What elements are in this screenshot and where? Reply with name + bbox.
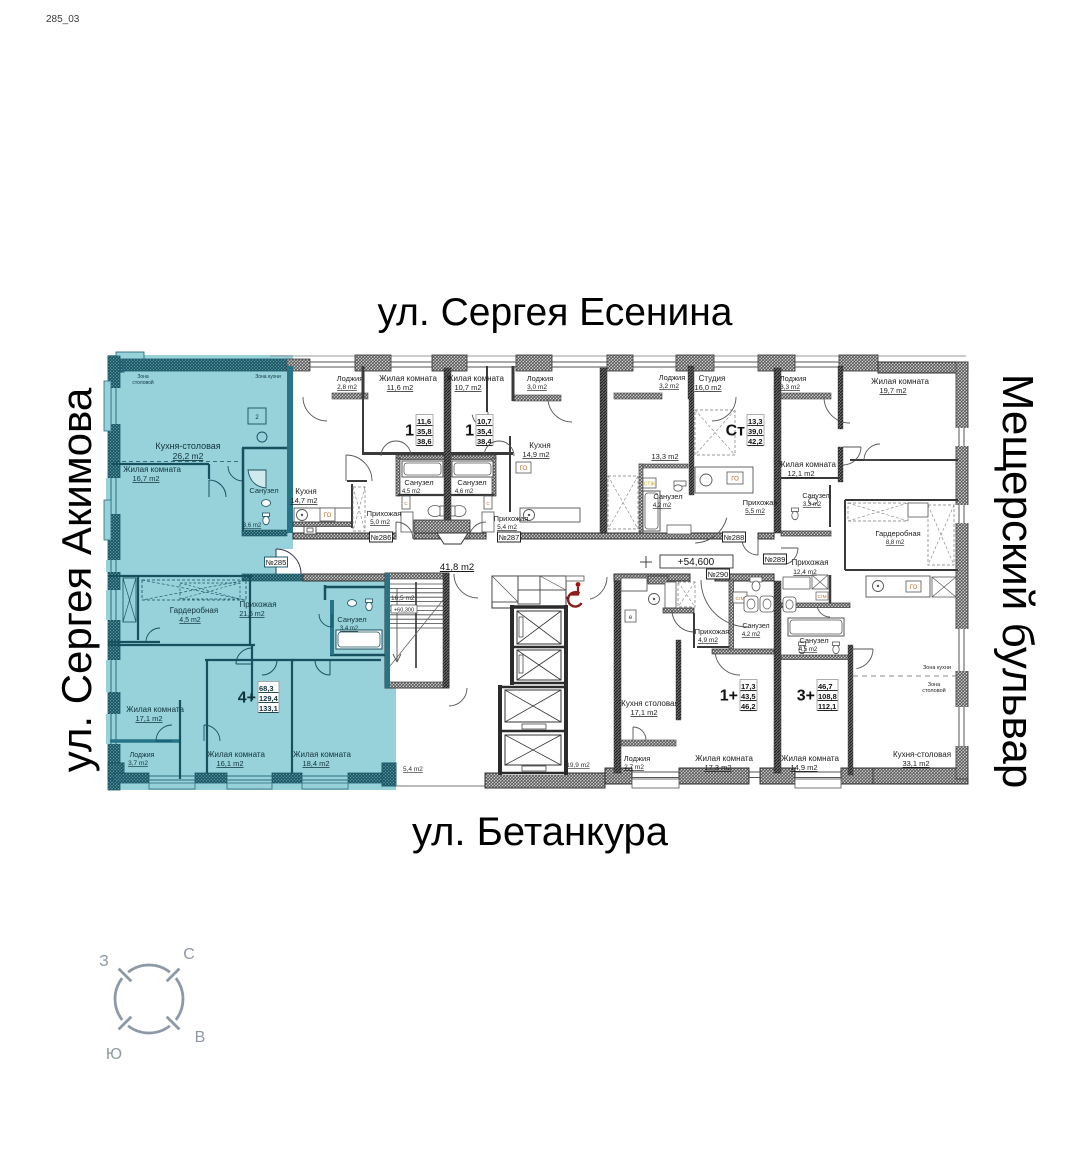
svg-text:38,4: 38,4 bbox=[477, 437, 492, 446]
svg-text:Прихожая: Прихожая bbox=[695, 627, 730, 636]
svg-text:1: 1 bbox=[405, 423, 414, 440]
svg-text:4+: 4+ bbox=[238, 690, 256, 707]
svg-text:Прихожая: Прихожая bbox=[791, 558, 828, 567]
svg-text:Прихожая: Прихожая bbox=[494, 514, 529, 523]
svg-text:Санузел: Санузел bbox=[802, 493, 829, 500]
svg-text:10,7: 10,7 bbox=[477, 417, 492, 426]
svg-text:ГО: ГО bbox=[520, 466, 528, 472]
svg-text:Жилая комната: Жилая комната bbox=[871, 377, 929, 386]
svg-text:285_03: 285_03 bbox=[46, 14, 80, 25]
svg-text:3,3 m2: 3,3 m2 bbox=[803, 502, 822, 508]
svg-text:№288: №288 bbox=[724, 533, 745, 542]
svg-text:39,0: 39,0 bbox=[748, 427, 763, 436]
svg-text:Кухня: Кухня bbox=[529, 441, 550, 450]
svg-text:Лоджия: Лоджия bbox=[527, 374, 554, 383]
svg-text:33,1 m2: 33,1 m2 bbox=[902, 759, 929, 768]
svg-text:Ст: Ст bbox=[726, 423, 746, 440]
svg-text:Санузел: Санузел bbox=[742, 623, 769, 630]
svg-text:5,5 m2: 5,5 m2 bbox=[745, 508, 765, 515]
svg-text:Зона кухни: Зона кухни bbox=[923, 665, 951, 671]
svg-text:16,5 m2: 16,5 m2 bbox=[391, 595, 415, 602]
svg-text:№287: №287 bbox=[499, 533, 520, 542]
svg-text:5,0 m2: 5,0 m2 bbox=[370, 519, 390, 526]
svg-text:4,2 m2: 4,2 m2 bbox=[653, 503, 672, 509]
svg-text:Жилая комната: Жилая комната bbox=[695, 754, 753, 763]
svg-text:11,6: 11,6 bbox=[417, 417, 431, 426]
svg-text:столовой: столовой bbox=[922, 687, 945, 694]
svg-text:16,1 m2: 16,1 m2 bbox=[216, 759, 243, 768]
svg-text:1: 1 bbox=[465, 423, 474, 440]
svg-text:17,3: 17,3 bbox=[741, 682, 756, 691]
svg-text:5,4 m2: 5,4 m2 bbox=[403, 766, 423, 773]
svg-text:2,8 m2: 2,8 m2 bbox=[337, 384, 357, 391]
svg-text:ГО: ГО bbox=[910, 585, 918, 591]
svg-text:Лоджия: Лоджия bbox=[130, 752, 155, 759]
svg-text:Жилая комната: Жилая комната bbox=[379, 374, 437, 383]
svg-text:Кухня-столовая: Кухня-столовая bbox=[893, 750, 951, 759]
svg-text:35,4: 35,4 bbox=[477, 427, 492, 436]
svg-text:Гардеробная: Гардеробная bbox=[170, 606, 218, 615]
svg-text:ГО: ГО bbox=[731, 476, 739, 482]
svg-text:Жилая комната: Жилая комната bbox=[207, 750, 265, 759]
svg-text:Прихожая: Прихожая bbox=[743, 498, 778, 507]
svg-text:17,1 m2: 17,1 m2 bbox=[630, 708, 657, 717]
svg-text:13,3 m2: 13,3 m2 bbox=[651, 452, 678, 461]
svg-text:Лоджия: Лоджия bbox=[337, 374, 364, 383]
svg-text:Прихожая: Прихожая bbox=[367, 509, 402, 518]
svg-text:Санузел: Санузел bbox=[249, 486, 278, 495]
svg-text:5,4 m2: 5,4 m2 bbox=[497, 524, 517, 531]
svg-text:19,7 m2: 19,7 m2 bbox=[879, 386, 906, 395]
svg-text:СтМ: СтМ bbox=[817, 594, 826, 599]
svg-text:14,7 m2: 14,7 m2 bbox=[290, 496, 317, 505]
svg-text:8,8 m2: 8,8 m2 bbox=[886, 540, 905, 546]
svg-text:Санузел: Санузел bbox=[337, 615, 366, 624]
svg-text:26,2 m2: 26,2 m2 bbox=[173, 451, 204, 461]
svg-text:68,3: 68,3 bbox=[259, 684, 274, 693]
svg-text:11,6 m2: 11,6 m2 bbox=[387, 383, 414, 392]
svg-text:Кухня-столовая: Кухня-столовая bbox=[155, 441, 220, 451]
svg-text:Прихожая: Прихожая bbox=[239, 600, 276, 609]
svg-text:12,1 m2: 12,1 m2 bbox=[787, 469, 814, 478]
svg-text:Жилая комната: Жилая комната bbox=[446, 374, 504, 383]
svg-text:ул. Сергея Есенина: ул. Сергея Есенина bbox=[378, 291, 733, 334]
svg-text:Жилая комната: Жилая комната bbox=[126, 705, 184, 714]
svg-text:№286: №286 bbox=[371, 533, 392, 542]
svg-text:4,5 m2: 4,5 m2 bbox=[799, 647, 818, 653]
svg-text:Жилая комната: Жилая комната bbox=[778, 460, 836, 469]
svg-text:Лоджия: Лоджия bbox=[659, 373, 686, 382]
svg-text:Санузел: Санузел bbox=[653, 492, 682, 501]
svg-text:Жилая комната: Жилая комната bbox=[781, 754, 839, 763]
svg-text:Санузел: Санузел bbox=[457, 478, 486, 487]
svg-text:3,4 m2: 3,4 m2 bbox=[340, 626, 359, 632]
svg-text:46,7: 46,7 bbox=[818, 682, 833, 691]
svg-text:Кухня столовая: Кухня столовая bbox=[621, 699, 679, 708]
svg-text:Лоджия: Лоджия bbox=[624, 754, 651, 763]
svg-text:З: З bbox=[99, 953, 109, 970]
svg-text:С: С bbox=[183, 946, 195, 963]
svg-text:46,2: 46,2 bbox=[741, 702, 756, 711]
svg-text:13,3: 13,3 bbox=[748, 417, 763, 426]
svg-text:3,0 m2: 3,0 m2 bbox=[527, 384, 547, 391]
svg-text:4,5 m2: 4,5 m2 bbox=[402, 489, 421, 495]
svg-text:10,7 m2: 10,7 m2 bbox=[454, 383, 481, 392]
svg-text:3,6 m2: 3,6 m2 bbox=[243, 523, 262, 529]
svg-text:№285: №285 bbox=[266, 558, 287, 567]
svg-text:35,8: 35,8 bbox=[417, 427, 432, 436]
svg-text:4,6 m2: 4,6 m2 bbox=[455, 489, 474, 495]
svg-text:14,9 m2: 14,9 m2 bbox=[522, 450, 549, 459]
svg-text:17,3 m2: 17,3 m2 bbox=[704, 763, 731, 772]
svg-text:4,9 m2: 4,9 m2 bbox=[698, 637, 718, 644]
svg-text:ул. Бетанкура: ул. Бетанкура bbox=[412, 810, 669, 854]
svg-text:Кухня: Кухня bbox=[295, 487, 316, 496]
svg-text:129,4: 129,4 bbox=[259, 694, 279, 703]
svg-text:Жилая комната: Жилая комната bbox=[293, 750, 351, 759]
svg-text:14,9 m2: 14,9 m2 bbox=[790, 763, 817, 772]
svg-text:столовой: столовой bbox=[132, 379, 154, 386]
svg-text:3,2 m2: 3,2 m2 bbox=[659, 383, 679, 390]
svg-text:43,5: 43,5 bbox=[741, 692, 756, 701]
svg-text:38,6: 38,6 bbox=[417, 437, 432, 446]
svg-text:3,3 m2: 3,3 m2 bbox=[780, 384, 800, 391]
svg-text:Студия: Студия bbox=[699, 374, 726, 383]
svg-text:Гардеробная: Гардеробная bbox=[875, 529, 920, 538]
svg-text:2,7 m2: 2,7 m2 bbox=[624, 764, 644, 771]
svg-text:Ю: Ю bbox=[106, 1046, 122, 1063]
svg-text:41,8 m2: 41,8 m2 bbox=[440, 562, 474, 573]
svg-text:Лоджия: Лоджия bbox=[780, 374, 807, 383]
svg-text:16,7 m2: 16,7 m2 bbox=[132, 474, 159, 483]
svg-text:112,1: 112,1 bbox=[818, 702, 836, 711]
svg-text:№289: №289 bbox=[765, 555, 786, 564]
svg-text:19,9 m2: 19,9 m2 bbox=[566, 762, 590, 769]
svg-text:Зона кухни: Зона кухни bbox=[255, 374, 281, 380]
svg-text:17,1 m2: 17,1 m2 bbox=[135, 714, 162, 723]
svg-text:СТЖ: СТЖ bbox=[644, 482, 656, 488]
svg-text:В: В bbox=[195, 1029, 206, 1046]
svg-text:4,2 m2: 4,2 m2 bbox=[742, 632, 761, 638]
svg-text:ГО: ГО bbox=[324, 513, 332, 519]
svg-text:+54,600: +54,600 bbox=[678, 557, 715, 568]
svg-text:42,2: 42,2 bbox=[748, 437, 763, 446]
svg-text:№290: №290 bbox=[708, 570, 729, 579]
svg-text:16,0 m2: 16,0 m2 bbox=[694, 383, 721, 392]
svg-text:3+: 3+ bbox=[797, 688, 815, 705]
svg-text:Мещерский бульвар: Мещерский бульвар bbox=[993, 374, 1042, 789]
svg-text:133,1: 133,1 bbox=[259, 704, 278, 713]
svg-text:Жилая комната: Жилая комната bbox=[123, 465, 181, 474]
svg-text:ул. Сергея Акимова: ул. Сергея Акимова bbox=[53, 387, 100, 772]
svg-text:Санузел: Санузел bbox=[404, 478, 433, 487]
svg-text:+60,300: +60,300 bbox=[394, 608, 414, 614]
svg-text:СтМ: СтМ bbox=[735, 596, 744, 601]
svg-text:Санузел: Санузел bbox=[799, 636, 828, 645]
svg-text:4,5 m2: 4,5 m2 bbox=[179, 617, 201, 624]
svg-text:18,4 m2: 18,4 m2 bbox=[302, 759, 329, 768]
svg-text:108,8: 108,8 bbox=[818, 692, 837, 701]
svg-text:21,5 m2: 21,5 m2 bbox=[239, 611, 264, 618]
svg-text:1+: 1+ bbox=[720, 688, 738, 705]
svg-text:3,7 m2: 3,7 m2 bbox=[128, 760, 148, 767]
